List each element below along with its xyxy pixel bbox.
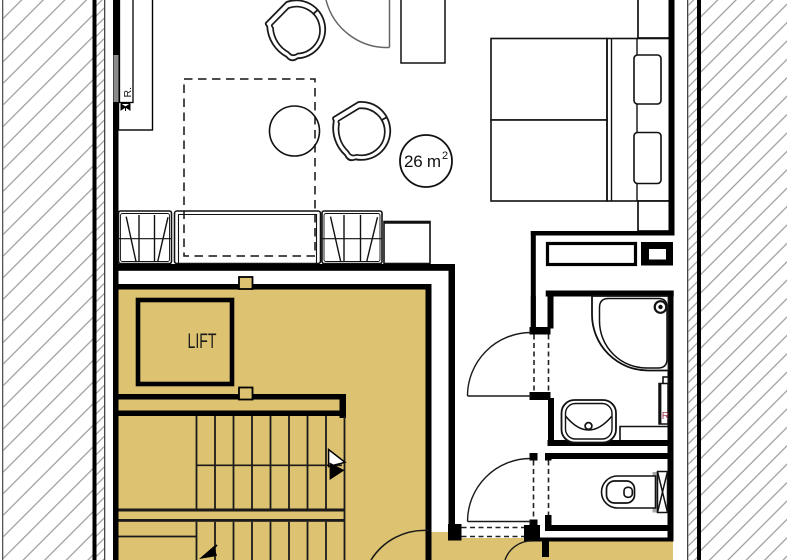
svg-text:R: R	[662, 411, 669, 422]
svg-text:2: 2	[442, 150, 448, 162]
svg-text:26 m: 26 m	[404, 152, 441, 171]
svg-text:R.: R.	[122, 87, 134, 98]
svg-text:LIFT: LIFT	[188, 330, 217, 353]
